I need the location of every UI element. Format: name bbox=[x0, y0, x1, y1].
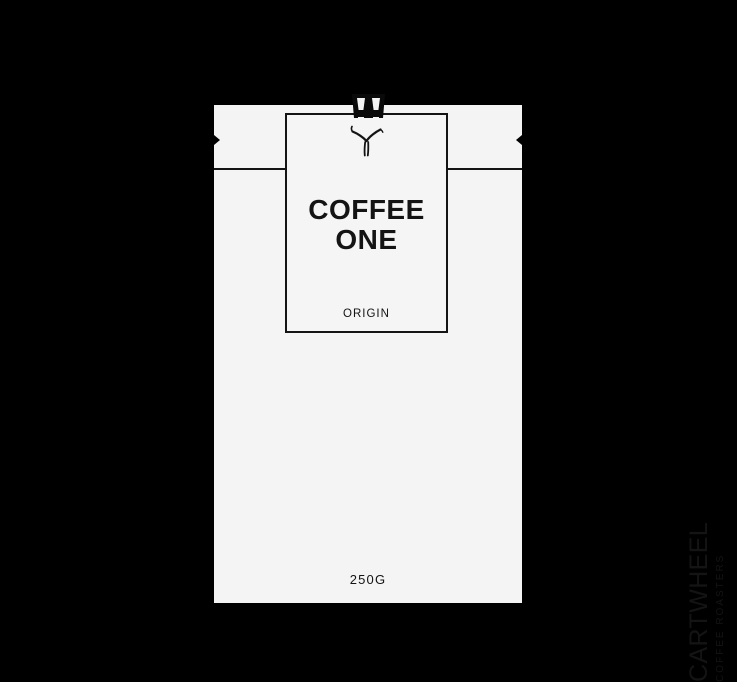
bag-clip-icon bbox=[350, 93, 387, 119]
tear-notch-left bbox=[214, 135, 220, 145]
brand-name: CARTWHEEL bbox=[686, 530, 712, 682]
packaging-mockup: COFFEE ONE ORIGIN 250G CARTWHEEL COFFEE … bbox=[0, 0, 737, 640]
product-title-line1: COFFEE bbox=[287, 195, 446, 225]
front-label: COFFEE ONE ORIGIN bbox=[285, 113, 448, 333]
brand-tagline: COFFEE ROASTERS bbox=[715, 530, 726, 682]
tear-notch-right bbox=[516, 135, 522, 145]
cartwheel-figure-icon bbox=[348, 122, 386, 160]
product-title-line2: ONE bbox=[287, 225, 446, 255]
brand-block: CARTWHEEL COFFEE ROASTERS bbox=[686, 530, 726, 682]
weight-text: 250G bbox=[214, 572, 522, 587]
origin-text: ORIGIN bbox=[287, 308, 446, 320]
coffee-bag: COFFEE ONE ORIGIN 250G CARTWHEEL COFFEE … bbox=[214, 105, 522, 603]
product-title: COFFEE ONE bbox=[287, 195, 446, 255]
